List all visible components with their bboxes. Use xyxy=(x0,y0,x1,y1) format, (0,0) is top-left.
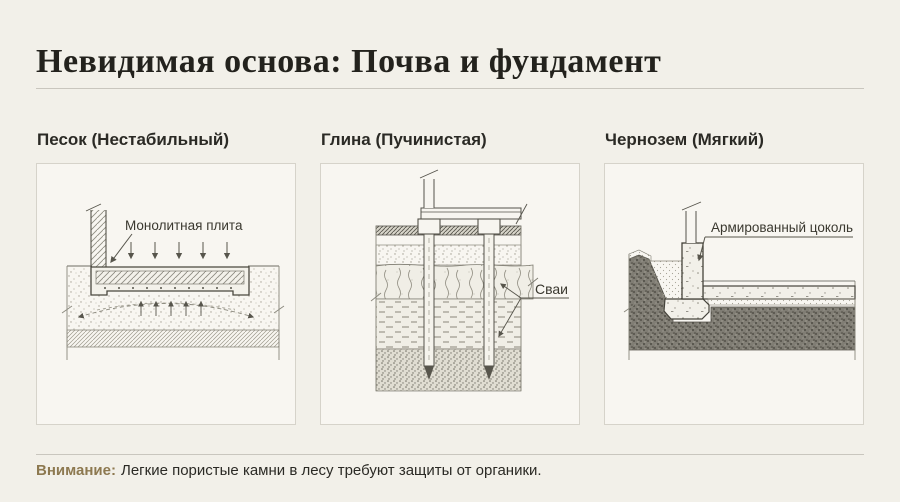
load-arrows xyxy=(131,242,227,258)
saturated-layer xyxy=(376,299,521,349)
pile-foundation-diagram: Сваи xyxy=(321,164,579,424)
sand-foundation-diagram: Монолитная плита xyxy=(37,164,295,424)
panel-sand: Песок (Нестабильный) xyxy=(36,130,296,425)
slab-label: Монолитная плита xyxy=(125,218,243,233)
pile-cap xyxy=(418,219,440,234)
panel-clay: Глина (Пучинистая) xyxy=(320,130,580,425)
wall-column xyxy=(686,211,696,243)
wall-column xyxy=(91,210,106,267)
warning-text: Легкие пористые камни в лесу требуют защ… xyxy=(121,462,542,479)
plinth-foundation-diagram: Армированный цоколь xyxy=(605,164,863,424)
bearing-layer xyxy=(376,349,521,391)
grillage-beam xyxy=(421,208,521,219)
reinforced-plinth xyxy=(682,243,703,299)
page-title: Невидимая основа: Почва и фундамент xyxy=(36,43,864,81)
panel-sand-header: Песок (Нестабильный) xyxy=(37,130,296,150)
panel-clay-box: Сваи xyxy=(320,163,580,425)
panel-chernozem-header: Чернозем (Мягкий) xyxy=(605,130,864,150)
footer-note: Внимание:Легкие пористые камни в лесу тр… xyxy=(36,461,864,481)
infographic-page: Невидимая основа: Почва и фундамент Песо… xyxy=(0,0,900,502)
top-divider xyxy=(36,88,864,89)
column-break-mark xyxy=(420,170,438,178)
base-stratum xyxy=(67,330,279,347)
slab-underlayment xyxy=(708,299,855,305)
panel-chernozem: Чернозем (Мягкий) xyxy=(604,130,864,425)
plinth-label: Армированный цоколь xyxy=(711,220,853,235)
column-break-mark xyxy=(86,204,101,211)
panel-clay-header: Глина (Пучинистая) xyxy=(321,130,580,150)
panel-chernozem-box: Армированный цоколь xyxy=(604,163,864,425)
slab-label-leader xyxy=(111,234,132,262)
pile-cap xyxy=(478,219,500,234)
floor-slab xyxy=(703,286,855,299)
footing xyxy=(664,299,709,319)
slab-hatch xyxy=(96,271,244,284)
bottom-divider xyxy=(36,454,864,455)
piles-label: Сваи xyxy=(535,281,568,297)
warning-label: Внимание: xyxy=(36,462,116,479)
heaving-clay-layer xyxy=(376,264,533,299)
column-break-mark xyxy=(682,202,701,210)
wall-column xyxy=(424,179,434,208)
panel-sand-box: Монолитная плита xyxy=(36,163,296,425)
sandy-layer xyxy=(376,245,521,265)
